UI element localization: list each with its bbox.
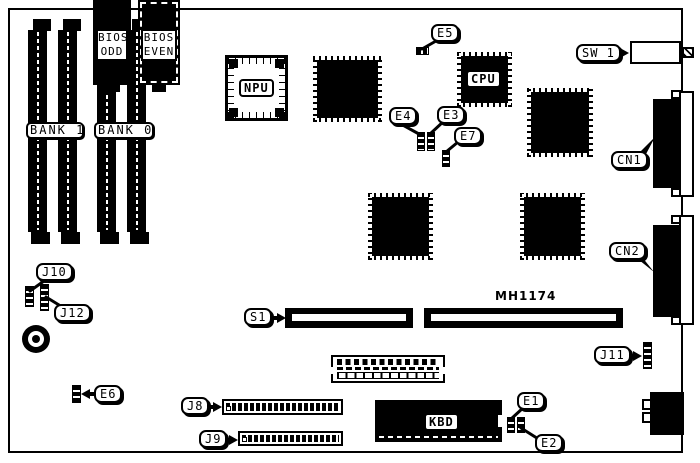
callout-e3: E3 (437, 106, 465, 124)
callout-cn2: CN2 (609, 242, 646, 260)
callout-j9: J9 (199, 430, 227, 448)
callout-e1: E1 (517, 392, 545, 410)
callout-e2: E2 (535, 434, 563, 452)
callout-e4: E4 (389, 107, 417, 125)
callout-cn1: CN1 (611, 151, 648, 169)
callout-sw1: SW 1 (576, 44, 621, 62)
callout-j10: J10 (36, 263, 73, 281)
motherboard-diagram: BANK 1 BANK 0 NPU CPU BIOS ODD (0, 0, 700, 463)
callout-j8: J8 (181, 397, 209, 415)
callout-e6: E6 (94, 385, 122, 403)
callout-s1: S1 (244, 308, 272, 326)
callout-j11: J11 (594, 346, 631, 364)
callout-e5: E5 (431, 24, 459, 42)
callout-e7: E7 (454, 127, 482, 145)
callout-j12: J12 (54, 304, 91, 322)
